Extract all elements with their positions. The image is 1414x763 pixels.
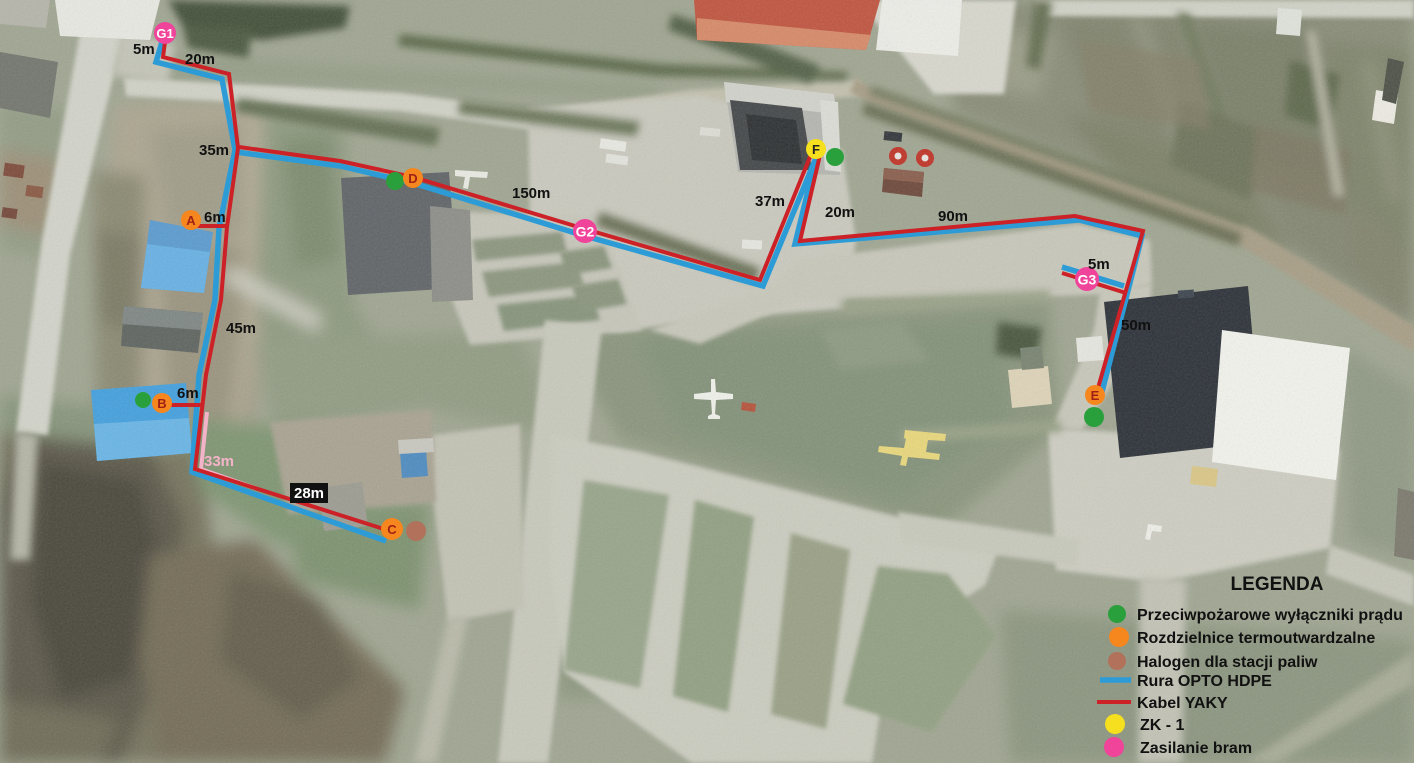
svg-text:150m: 150m <box>512 185 550 202</box>
svg-text:Zasilanie bram: Zasilanie bram <box>1140 740 1252 757</box>
svg-text:5m: 5m <box>133 41 155 58</box>
svg-text:G2: G2 <box>576 224 595 240</box>
svg-text:Kabel YAKY: Kabel YAKY <box>1137 695 1228 712</box>
svg-text:A: A <box>186 213 196 228</box>
svg-text:D: D <box>408 171 417 186</box>
svg-text:37m: 37m <box>755 193 785 210</box>
svg-text:20m: 20m <box>185 51 215 68</box>
svg-text:Rura OPTO HDPE: Rura OPTO HDPE <box>1137 673 1272 690</box>
svg-text:28m: 28m <box>294 485 324 502</box>
svg-text:33m: 33m <box>204 453 234 470</box>
svg-text:E: E <box>1091 388 1100 403</box>
svg-text:Halogen dla stacji paliw: Halogen dla stacji paliw <box>1137 654 1318 671</box>
svg-text:45m: 45m <box>226 320 256 337</box>
svg-text:G1: G1 <box>156 26 173 41</box>
svg-text:F: F <box>812 142 820 157</box>
svg-text:5m: 5m <box>1088 256 1110 273</box>
svg-text:Rozdzielnice termoutwardzalne: Rozdzielnice termoutwardzalne <box>1137 630 1375 647</box>
svg-text:50m: 50m <box>1121 317 1151 334</box>
svg-text:LEGENDA: LEGENDA <box>1231 574 1324 595</box>
svg-text:6m: 6m <box>204 209 226 226</box>
svg-text:G3: G3 <box>1078 272 1097 288</box>
svg-text:20m: 20m <box>825 204 855 221</box>
svg-text:ZK - 1: ZK - 1 <box>1140 717 1185 734</box>
svg-text:Przeciwpożarowe wyłączniki prą: Przeciwpożarowe wyłączniki prądu <box>1137 607 1403 624</box>
svg-text:90m: 90m <box>938 208 968 225</box>
svg-text:6m: 6m <box>177 385 199 402</box>
svg-text:35m: 35m <box>199 142 229 159</box>
svg-text:C: C <box>387 522 397 537</box>
svg-text:B: B <box>157 396 166 411</box>
